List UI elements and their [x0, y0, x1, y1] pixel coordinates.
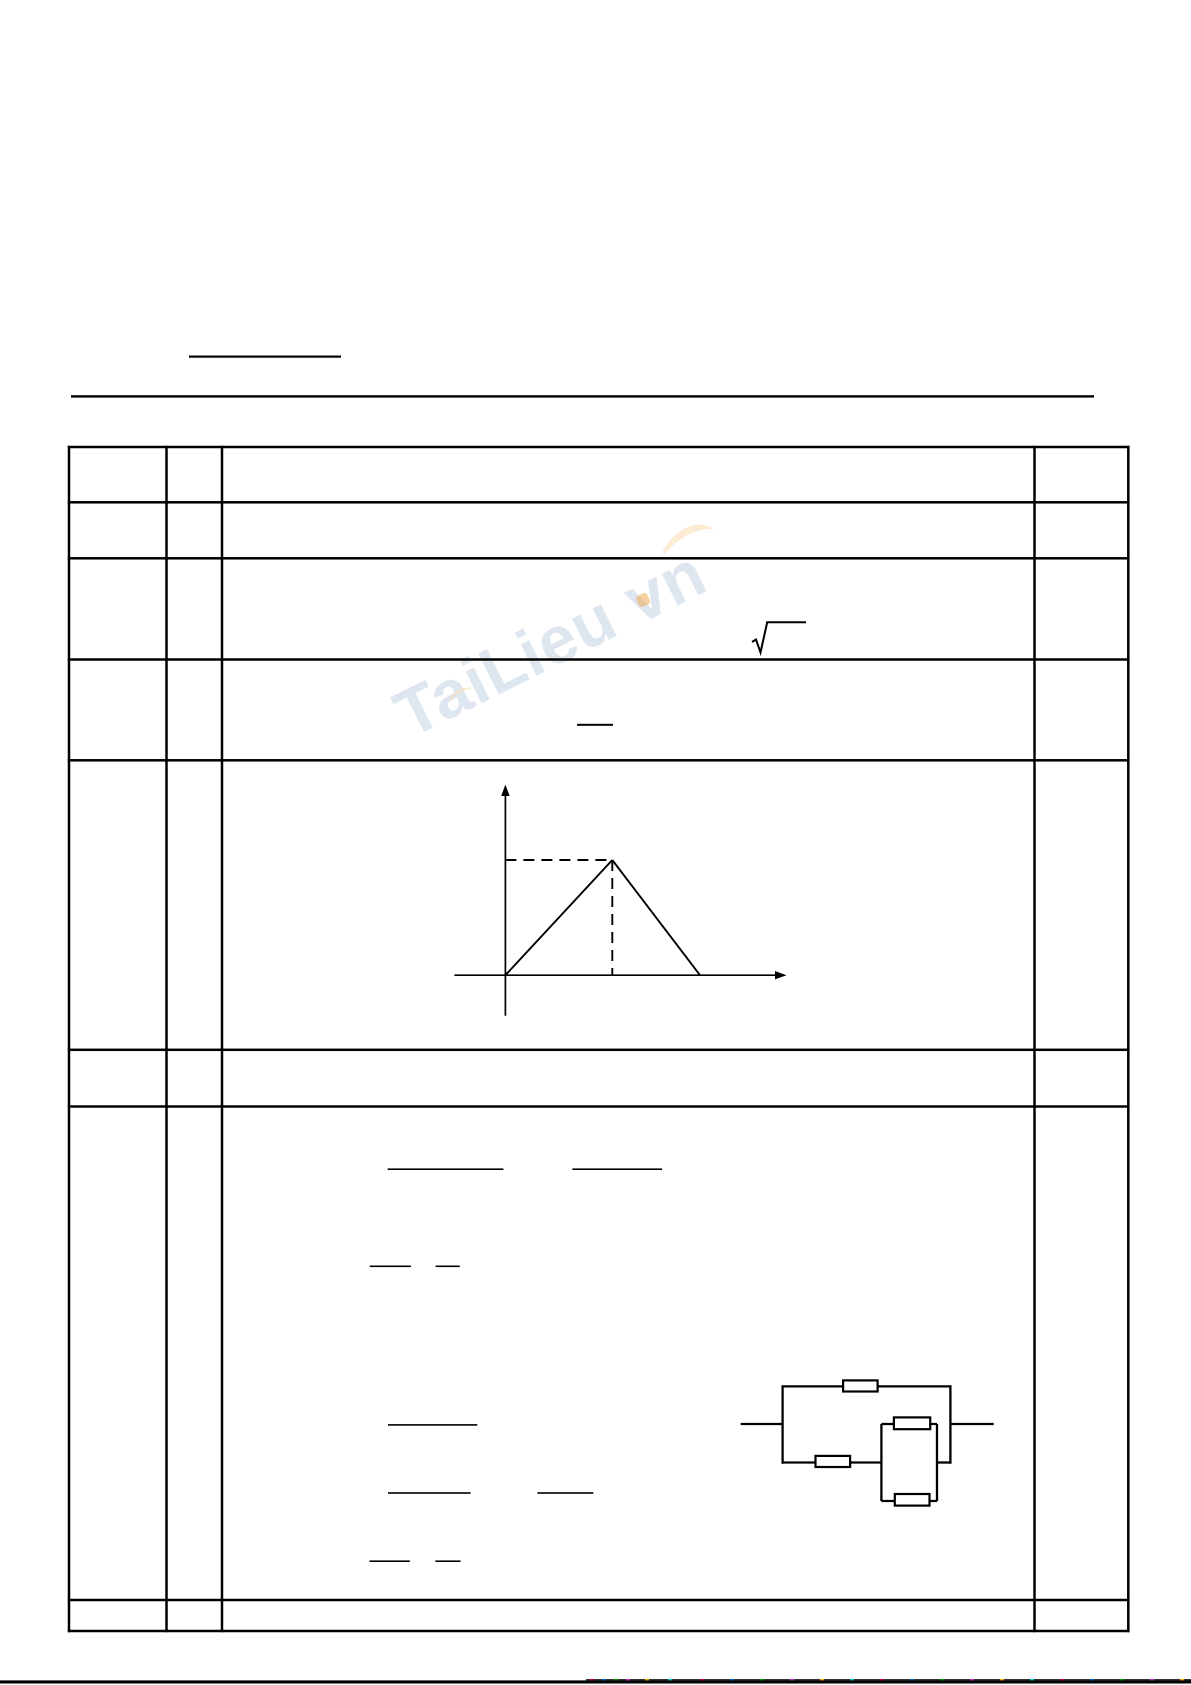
svg-text:TaiLieu.vn: TaiLieu.vn	[383, 535, 718, 752]
